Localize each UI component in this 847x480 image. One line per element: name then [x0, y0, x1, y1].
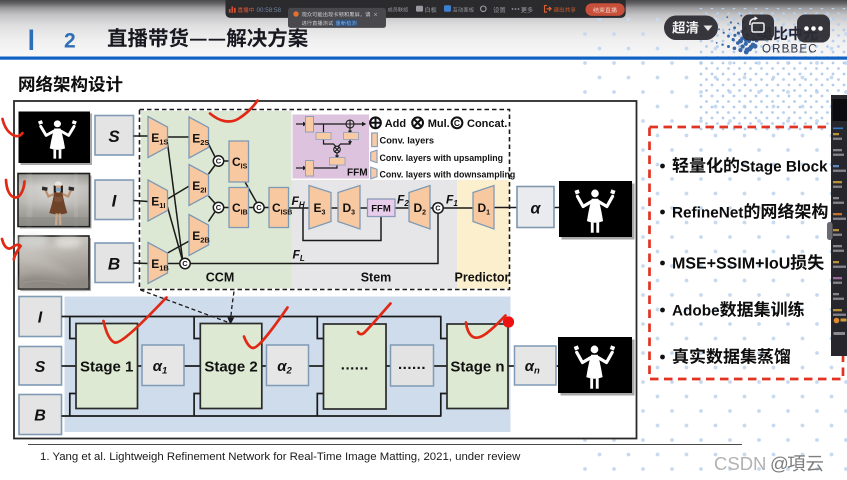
svg-text:2: 2	[64, 30, 76, 53]
svg-text:C: C	[216, 203, 222, 212]
svg-text:Mul.: Mul.	[428, 118, 450, 130]
svg-text:Conv. layers: Conv. layers	[380, 136, 435, 146]
svg-text:×: ×	[374, 12, 378, 19]
svg-text:......: ......	[398, 356, 426, 373]
svg-text:ORBBEC: ORBBEC	[762, 44, 818, 56]
svg-text:Add: Add	[385, 118, 406, 130]
svg-text:FFM: FFM	[371, 204, 391, 215]
svg-text:@: @	[770, 453, 789, 474]
svg-text:Stem: Stem	[361, 271, 392, 285]
svg-text:Stage 2: Stage 2	[204, 359, 257, 376]
svg-text:FFM: FFM	[347, 168, 368, 179]
svg-text:C: C	[182, 259, 188, 268]
svg-text:CCM: CCM	[206, 271, 234, 285]
svg-text:S: S	[108, 127, 120, 146]
svg-text:C: C	[454, 118, 460, 128]
svg-text:Stage n: Stage n	[450, 359, 504, 376]
svg-text:C: C	[435, 204, 441, 213]
svg-text:C: C	[216, 157, 222, 166]
svg-text:S: S	[35, 359, 46, 376]
svg-text:CSDN: CSDN	[714, 453, 766, 474]
svg-text:B: B	[108, 255, 120, 274]
svg-text:I: I	[38, 310, 43, 327]
svg-text:00:58:58: 00:58:58	[257, 7, 282, 14]
svg-text:C: C	[256, 203, 262, 212]
svg-text:......: ......	[341, 357, 369, 374]
svg-text:Concat.: Concat.	[467, 118, 507, 130]
svg-text:Conv. layers with upsampling: Conv. layers with upsampling	[380, 153, 504, 163]
svg-text:Predictor: Predictor	[455, 271, 510, 285]
svg-text:α: α	[531, 201, 542, 218]
svg-text:Stage 1: Stage 1	[80, 359, 133, 376]
svg-text:1. Yang et al. Lightweigh Refi: 1. Yang et al. Lightweigh Refinement Net…	[40, 451, 521, 463]
svg-text:Conv. layers with downsampling: Conv. layers with downsampling	[380, 169, 516, 179]
svg-text:B: B	[34, 408, 46, 425]
